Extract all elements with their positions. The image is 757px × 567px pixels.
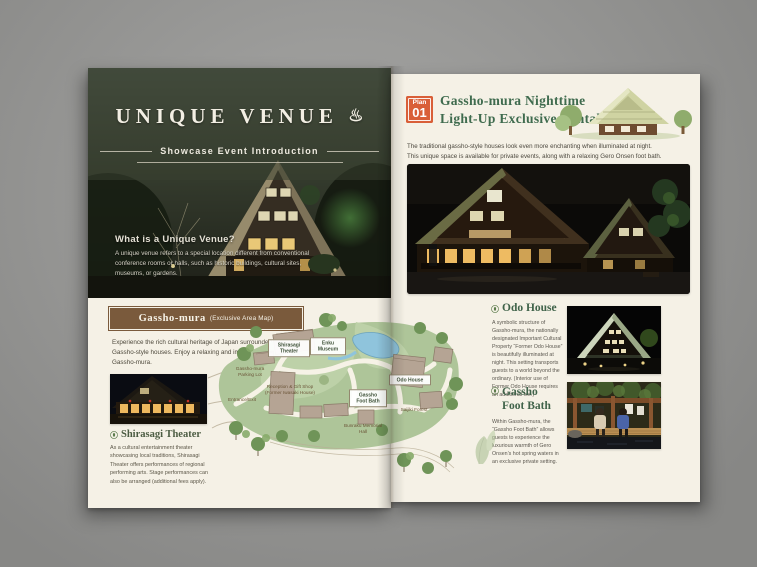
plan-intro-line1: The traditional gassho-style houses look… bbox=[407, 142, 693, 152]
hero-heading: What is a Unique Venue? bbox=[115, 234, 325, 245]
foot-bath-heading-text: Gassho Foot Bath bbox=[502, 386, 551, 414]
area-map-illustration bbox=[206, 308, 468, 480]
onsen-icon: ♨ bbox=[348, 106, 363, 125]
foot-bath-photo bbox=[567, 382, 661, 449]
leaf-icon bbox=[491, 305, 499, 313]
shirasagi-theater-heading-text: Shirasagi Theater bbox=[121, 429, 201, 440]
map-label-shirasagi: Shirasagi Theater bbox=[268, 339, 310, 357]
odo-house-heading-text: Odo House bbox=[502, 302, 557, 314]
hero-subtitle: Showcase Event Introduction bbox=[88, 146, 391, 156]
map-tag-reception: Reception & Gift Shop (Former Iwasaki Ho… bbox=[259, 384, 321, 396]
hero-subtitle-text: Showcase Event Introduction bbox=[160, 146, 318, 156]
leaf-watermark bbox=[471, 426, 497, 466]
subtitle-underline bbox=[137, 162, 343, 163]
map-label-footbath: Gassho Foot Bath bbox=[349, 389, 387, 407]
map-section-title-main: Gassho-mura bbox=[139, 313, 206, 324]
brochure-spread: UNIQUE VENUE ♨ Showcase Event Introducti… bbox=[88, 66, 700, 508]
nighttime-lightup-image bbox=[407, 164, 690, 294]
odo-house-image bbox=[567, 306, 661, 374]
foot-bath-heading: Gassho Foot Bath bbox=[491, 386, 551, 414]
shirasagi-theater-heading: Shirasagi Theater bbox=[110, 429, 201, 440]
theater-night-image bbox=[110, 374, 207, 424]
page-title: UNIQUE VENUE ♨ bbox=[88, 104, 391, 129]
leaf-icon bbox=[491, 387, 499, 395]
foot-bath-heading-line1: Gassho bbox=[502, 386, 551, 400]
odo-house-heading: Odo House bbox=[491, 302, 557, 314]
map-tag-bunraku: Bunraku Memorial Hall bbox=[342, 423, 384, 435]
plan-intro-line2: This unique space is available for priva… bbox=[407, 152, 693, 162]
map-tag-saijiki: Saijiki Forest bbox=[396, 407, 432, 413]
nighttime-lightup-photo bbox=[407, 164, 690, 294]
shirasagi-theater-body: As a cultural entertainment theater show… bbox=[110, 444, 212, 486]
gassho-house-illustration bbox=[543, 86, 695, 141]
hero-copy: What is a Unique Venue? A unique venue r… bbox=[115, 234, 325, 279]
map-label-odo: Odo House bbox=[389, 374, 431, 385]
subtitle-rule-right bbox=[327, 151, 379, 152]
hero-section: UNIQUE VENUE ♨ Showcase Event Introducti… bbox=[88, 68, 391, 298]
foot-bath-image bbox=[567, 382, 661, 449]
foot-bath-body: Within Gassho-mura, the “Gassho Foot Bat… bbox=[492, 418, 565, 466]
map-tag-entrance: Entrance/Exit bbox=[220, 397, 264, 403]
plan-badge: Plan 01 bbox=[406, 96, 433, 123]
shirasagi-theater-photo bbox=[110, 374, 207, 424]
odo-house-photo bbox=[567, 306, 661, 374]
map-label-enku: Enku Museum bbox=[310, 337, 346, 355]
hero-body-text: A unique venue refers to a special locat… bbox=[115, 249, 325, 279]
photo-backdrop: UNIQUE VENUE ♨ Showcase Event Introducti… bbox=[0, 0, 757, 567]
foot-bath-heading-line2: Foot Bath bbox=[502, 400, 551, 414]
map-tag-parking: Gassho-mura Parking Lot bbox=[230, 366, 270, 378]
area-map: Shirasagi Theater Enku Museum Gassho-mur… bbox=[206, 308, 468, 480]
plan-badge-border bbox=[408, 98, 431, 121]
leaf-icon bbox=[110, 431, 118, 439]
subtitle-rule-left bbox=[100, 151, 152, 152]
page-title-text: UNIQUE VENUE bbox=[116, 104, 338, 128]
plan-intro: The traditional gassho-style houses look… bbox=[407, 142, 693, 162]
